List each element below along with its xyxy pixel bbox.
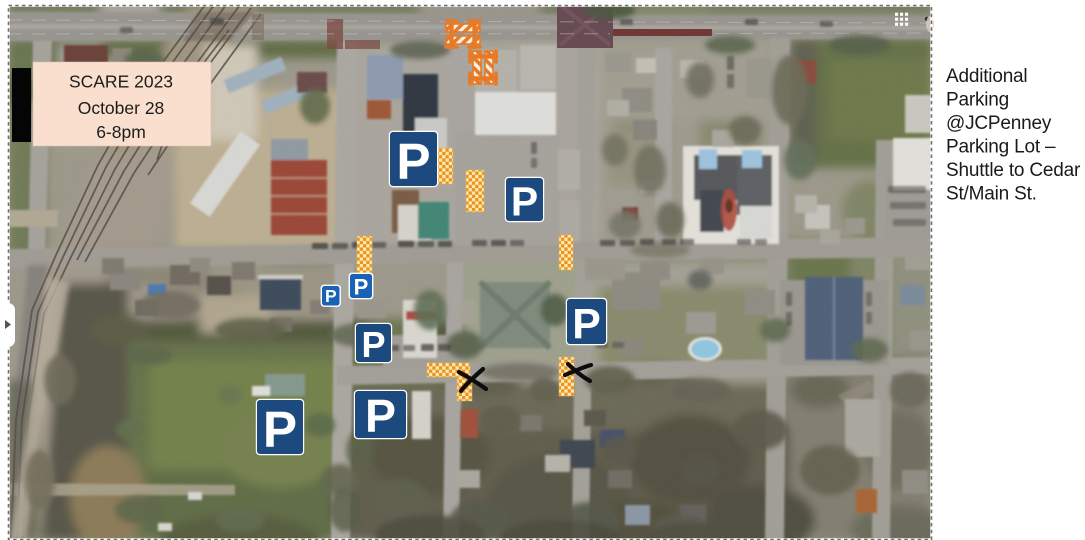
svg-text:P: P bbox=[361, 324, 385, 365]
svg-text:@JCPenney: @JCPenney bbox=[946, 113, 1052, 134]
svg-text:P: P bbox=[365, 390, 396, 442]
svg-text:P: P bbox=[263, 401, 297, 458]
svg-text:SCARE 2023: SCARE 2023 bbox=[69, 72, 173, 92]
svg-text:October 28: October 28 bbox=[78, 98, 165, 118]
svg-text:St/Main St.: St/Main St. bbox=[946, 184, 1037, 205]
svg-text:P: P bbox=[572, 300, 601, 348]
svg-text:Parking Lot –: Parking Lot – bbox=[946, 137, 1056, 158]
svg-text:Additional: Additional bbox=[946, 66, 1027, 87]
svg-text:P: P bbox=[325, 286, 337, 306]
svg-text:6-8pm: 6-8pm bbox=[96, 122, 146, 142]
svg-text:P: P bbox=[396, 133, 430, 190]
svg-text:P: P bbox=[511, 179, 538, 225]
svg-text:Shuttle to Cedar: Shuttle to Cedar bbox=[946, 160, 1081, 181]
svg-text:P: P bbox=[354, 275, 369, 300]
svg-text:Parking: Parking bbox=[946, 90, 1009, 111]
